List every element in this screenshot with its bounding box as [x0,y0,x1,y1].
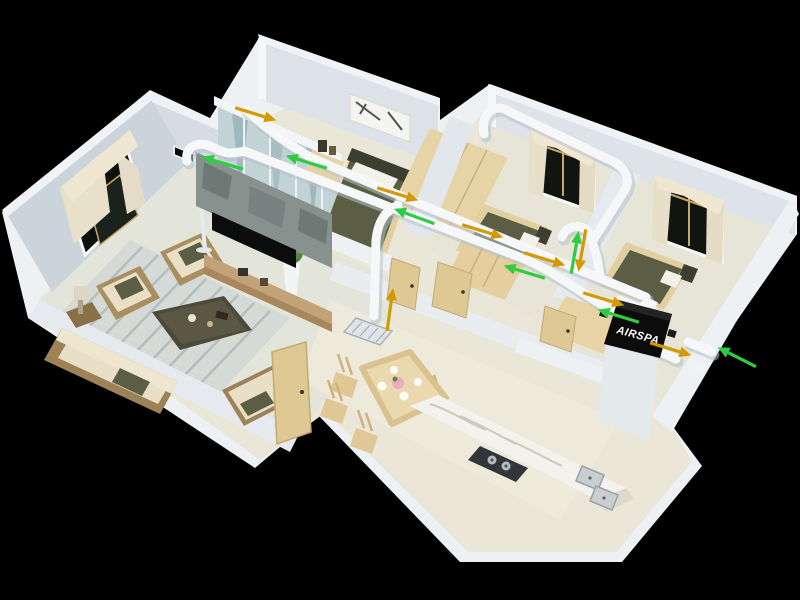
door-handle [461,290,465,294]
entry-door-handle [300,390,304,394]
intake-nub [695,364,705,372]
master-wall-edge [258,38,266,101]
entry-door [272,342,311,444]
apartment-scene: AIRSPA [0,0,800,600]
door-handle [566,329,570,333]
floorplan-3d-render: AIRSPA [0,0,800,600]
door-handle [410,284,414,288]
